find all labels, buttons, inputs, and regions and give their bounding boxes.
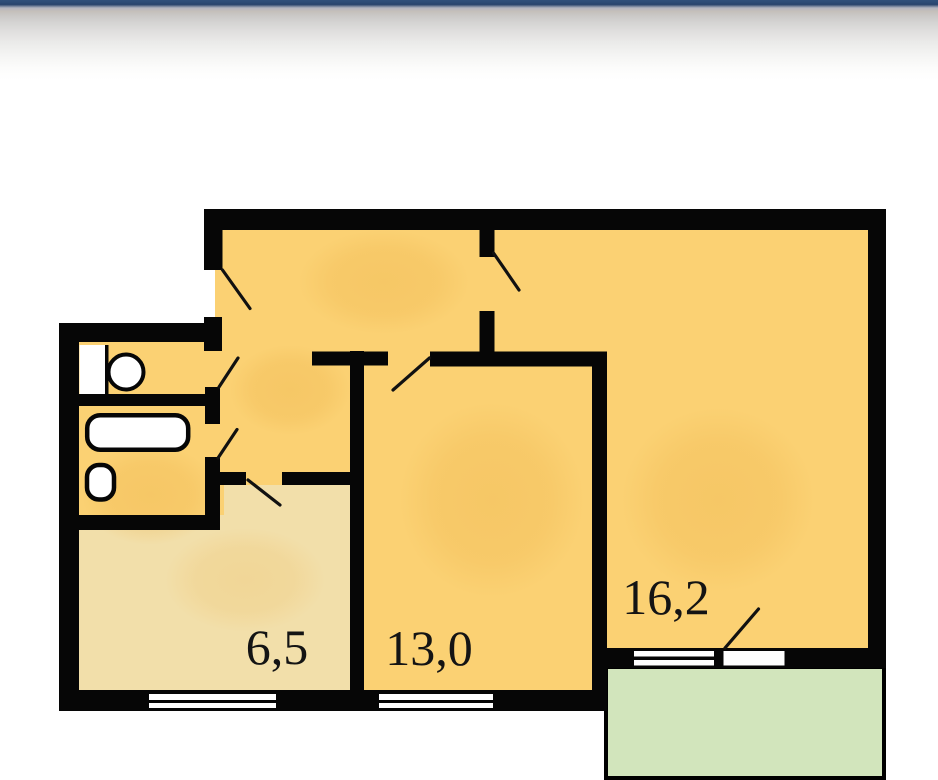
svg-text:16,2: 16,2 xyxy=(622,569,710,625)
svg-text:13,0: 13,0 xyxy=(385,620,473,676)
svg-text:6,5: 6,5 xyxy=(246,619,309,675)
